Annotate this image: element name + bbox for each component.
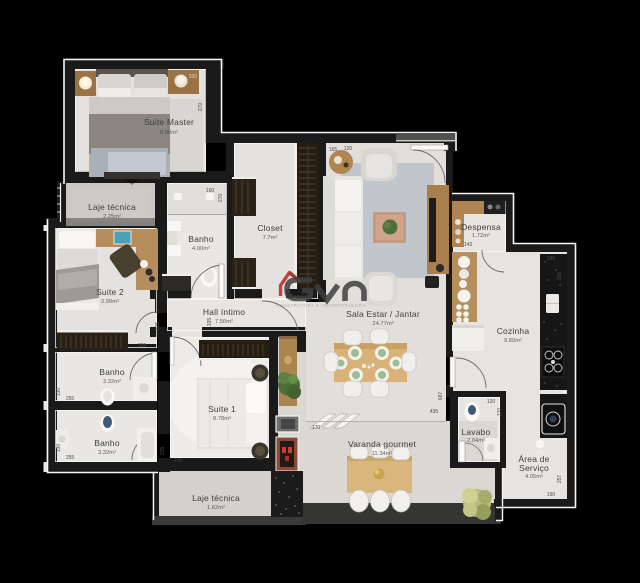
svg-text:2.25m²: 2.25m² [103,214,121,220]
svg-text:270: 270 [174,458,183,464]
svg-text:Despensa: Despensa [461,222,501,232]
svg-text:1.72m²: 1.72m² [472,233,490,239]
svg-text:Sala Estar / Jantar: Sala Estar / Jantar [346,309,420,319]
svg-text:Varanda gourmet: Varanda gourmet [348,439,416,449]
svg-text:2.90m²: 2.90m² [101,299,119,305]
svg-text:280: 280 [547,256,556,262]
svg-text:143: 143 [464,242,473,248]
svg-text:270: 270 [198,103,204,112]
svg-text:255: 255 [66,455,75,461]
svg-text:Laje técnica: Laje técnica [192,493,240,503]
svg-text:7.7m²: 7.7m² [263,235,278,241]
svg-text:Lavabo: Lavabo [461,427,490,437]
svg-text:130: 130 [56,388,62,397]
svg-text:Suite 2: Suite 2 [96,287,124,297]
svg-text:255: 255 [138,343,147,349]
svg-text:Cozinha: Cozinha [497,326,530,336]
svg-text:11.34m²: 11.34m² [372,451,393,457]
svg-text:Banho: Banho [188,234,214,244]
svg-text:335: 335 [207,318,213,327]
svg-text:3.32m²: 3.32m² [98,450,116,456]
svg-text:Suite 1: Suite 1 [208,404,236,414]
svg-text:4.05m²: 4.05m² [525,474,543,480]
svg-text:24.77m²: 24.77m² [372,321,393,327]
svg-text:CONSTRUTORA E INCORPORADORA: CONSTRUTORA E INCORPORADORA [276,303,365,308]
svg-text:Serviço: Serviço [519,463,549,473]
svg-text:120: 120 [344,146,353,152]
svg-text:130: 130 [56,444,62,453]
svg-text:350: 350 [557,272,563,281]
svg-text:687: 687 [438,392,444,401]
svg-text:7.50m²: 7.50m² [215,319,233,325]
svg-text:160: 160 [206,188,215,194]
svg-text:8.78m²: 8.78m² [213,416,231,422]
svg-text:4.00m²: 4.00m² [192,246,210,252]
svg-text:170: 170 [497,408,503,417]
svg-text:170: 170 [312,425,321,431]
svg-text:160: 160 [547,492,556,498]
svg-text:Banho: Banho [99,367,125,377]
svg-text:335: 335 [155,322,161,331]
svg-text:255: 255 [66,396,75,402]
svg-text:330: 330 [189,74,198,80]
svg-text:Hall íntimo: Hall íntimo [203,307,245,317]
svg-text:165: 165 [329,147,338,153]
svg-text:Banho: Banho [94,438,120,448]
svg-text:9.80m²: 9.80m² [504,338,522,344]
svg-text:Laje técnica: Laje técnica [88,202,136,212]
svg-text:335: 335 [160,447,166,456]
svg-text:270: 270 [218,194,224,203]
svg-text:Closet: Closet [257,223,283,233]
svg-text:435: 435 [430,409,439,415]
svg-text:Suite Master: Suite Master [144,117,194,127]
svg-text:9.90m²: 9.90m² [160,130,178,136]
svg-text:120: 120 [487,399,496,405]
svg-text:257: 257 [557,475,563,484]
svg-text:3.32m²: 3.32m² [103,379,121,385]
svg-text:1.62m²: 1.62m² [207,505,225,511]
svg-text:2.04m²: 2.04m² [467,438,485,444]
